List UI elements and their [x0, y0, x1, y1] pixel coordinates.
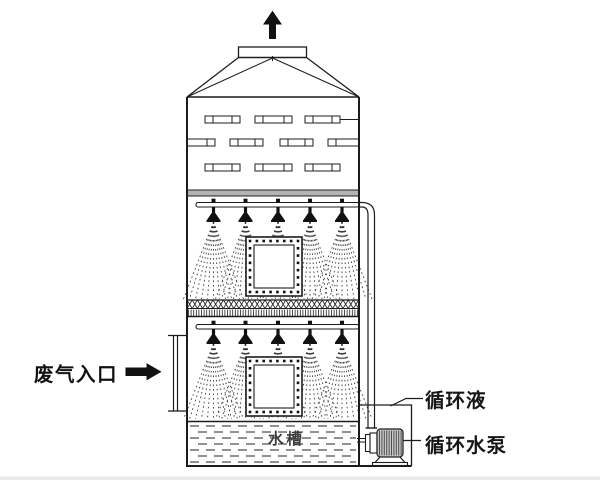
manhole-bolt-dot [276, 411, 279, 414]
manhole-bolt-dot [262, 240, 265, 243]
slat [187, 139, 215, 146]
manhole-bolt-dot [297, 283, 300, 286]
manhole-bolt-dot [269, 291, 272, 294]
nozzle-stem [276, 207, 279, 214]
circulating-liquid-label: 循环液 [425, 389, 487, 412]
spray-ray [214, 344, 226, 419]
spray-header-pipe [196, 325, 359, 330]
nozzle-stem [308, 329, 311, 336]
manhole-bolt-dot [297, 276, 300, 279]
manhole-bolt-dot [297, 269, 300, 272]
nozzle-mount-knob [244, 321, 248, 325]
manhole-bolt-dot [249, 403, 252, 406]
nozzle-stem [244, 329, 247, 336]
spray-nozzle-icon [303, 335, 317, 344]
packing-bed-band [187, 300, 359, 317]
spray-ray [190, 222, 214, 299]
nozzle-stem [276, 329, 279, 336]
spray-ray [216, 344, 246, 419]
spray-ray [342, 344, 348, 419]
manhole-bolt-dot [297, 411, 300, 414]
nozzle-stem [340, 207, 343, 214]
spray-nozzle-icon [271, 213, 285, 222]
spray-ray [342, 344, 366, 419]
spray-nozzle-icon [239, 213, 253, 222]
spray-ray [330, 344, 342, 419]
manhole-bolt-dot [256, 360, 259, 363]
slat [205, 116, 240, 123]
manhole-bolt-dot [283, 291, 286, 294]
slat [255, 164, 292, 171]
spray-ray [310, 344, 340, 419]
manhole-bolt-dot [256, 291, 259, 294]
manhole-bolt-dot [256, 240, 259, 243]
spray-ray [208, 222, 214, 299]
manhole-bolt-dot [249, 367, 252, 370]
manhole-bolt-dot [290, 360, 293, 363]
manhole-bolt-dot [249, 411, 252, 414]
manhole-bolt-dot [283, 240, 286, 243]
slat [328, 139, 359, 146]
spray-ray [304, 344, 310, 419]
pipe-inner-line [359, 207, 368, 428]
manhole-bolt-dot [297, 262, 300, 265]
circulating-pump [357, 429, 408, 466]
nozzle-stem [244, 207, 247, 214]
spray-ray [240, 344, 246, 419]
nozzle-mount-knob [276, 321, 280, 325]
manhole-bolt-dot [297, 403, 300, 406]
slat [255, 116, 292, 123]
nozzle-mount-knob [244, 199, 248, 203]
manhole-bolt-dot [297, 396, 300, 399]
manhole-bolt-dot [249, 276, 252, 279]
pump-legs [375, 457, 405, 463]
spray-ray [310, 222, 322, 299]
waste-gas-inlet-label: 废气入口 [34, 363, 118, 386]
spray-ray [222, 344, 246, 419]
spray-nozzle-icon [271, 335, 285, 344]
slat [205, 164, 240, 171]
spray-ray [214, 222, 226, 299]
manhole-bolt-dot [297, 367, 300, 370]
spray-ray [234, 222, 246, 299]
nozzle-mount-knob [340, 321, 344, 325]
manhole-bolt-dot [276, 360, 279, 363]
manhole-bolt-dot [249, 262, 252, 265]
manhole-bolt-dot [249, 283, 252, 286]
manhole-bolt-dot [262, 411, 265, 414]
manhole-bolt-dot [297, 360, 300, 363]
manhole-bolt-dot [276, 291, 279, 294]
pump-suction-flange [366, 435, 371, 452]
spray-ray [336, 222, 342, 299]
spray-ray [190, 344, 214, 419]
spray-ray [240, 222, 246, 299]
manhole-bolt-dot [249, 374, 252, 377]
water-tank-label: 水槽 [268, 429, 305, 448]
inlet-arrow-icon [126, 364, 161, 380]
spray-ray [342, 222, 366, 299]
manhole-bolt-dot [283, 360, 286, 363]
spray-ray [310, 344, 322, 419]
circulating-pump-label: 循环水泵 [425, 434, 507, 457]
manhole-bolt-dot [262, 291, 265, 294]
manhole-bolt-dot [283, 411, 286, 414]
spray-ray [214, 222, 220, 299]
manhole-bolt-dot [269, 411, 272, 414]
manhole-bolt-dot [269, 360, 272, 363]
exhaust-arrow-icon [264, 12, 281, 39]
spray-nozzle-icon [239, 335, 253, 344]
manhole-bolt-dot [297, 374, 300, 377]
manhole-bolt-dot [249, 382, 252, 385]
spray-ray [310, 222, 340, 299]
spray-nozzle-icon [335, 213, 349, 222]
manhole-bolt-dot [297, 240, 300, 243]
nozzle-mount-knob [308, 321, 312, 325]
nozzle-mount-knob [212, 199, 216, 203]
spray-ray [208, 344, 214, 419]
manhole-bolt-dot [276, 240, 279, 243]
spray-header-pipe [196, 203, 359, 208]
spray-ray [214, 344, 238, 419]
spray-ray [214, 344, 244, 419]
manhole-inner-frame [254, 365, 294, 408]
manhole-bolt-dot [249, 360, 252, 363]
scrubber-tower-diagram: 废气入口 循环液 循环水泵 水槽 [0, 0, 600, 484]
nozzle-stem [212, 329, 215, 336]
bottom-strip [0, 477, 600, 481]
spray-ray [310, 344, 334, 419]
diagram-canvas: 废气入口 循环液 循环水泵 水槽 [0, 0, 600, 484]
manhole-bolt-dot [290, 411, 293, 414]
spray-ray [202, 344, 214, 419]
outlet-collar [239, 47, 307, 58]
spray-ray [342, 344, 354, 419]
manhole-bolt-dot [297, 382, 300, 385]
spray-ray [312, 222, 342, 299]
slat [280, 139, 313, 146]
spray-ray [216, 222, 246, 299]
manhole-bolt-dot [249, 254, 252, 257]
slat [230, 139, 263, 146]
spray-ray [330, 222, 342, 299]
manhole-bolt-dot [269, 240, 272, 243]
spray-ray [202, 222, 214, 299]
manhole-bolt-dot [249, 396, 252, 399]
nozzle-stem [212, 207, 215, 214]
pump-base [373, 463, 408, 466]
nozzle-stem [308, 207, 311, 214]
manhole-bolt-dot [297, 291, 300, 294]
demister-slat-rows [187, 116, 359, 171]
spray-ray [318, 344, 342, 419]
manhole-bolt-dot [297, 389, 300, 392]
manhole-bolt-dot [249, 240, 252, 243]
manhole-inner-frame [254, 245, 294, 288]
manhole-bolt-dot [297, 247, 300, 250]
pipe-outer-line [359, 203, 375, 429]
spray-nozzle-icon [335, 335, 349, 344]
spray-ray [214, 222, 244, 299]
spray-ray [312, 344, 342, 419]
spray-ray [336, 344, 342, 419]
nozzle-mount-knob [340, 199, 344, 203]
slat [305, 116, 340, 123]
manhole-bolt-dot [297, 254, 300, 257]
spray-nozzle-icon [303, 213, 317, 222]
manhole-bolt-dot [249, 291, 252, 294]
inlet-flange [168, 335, 187, 412]
spray-ray [234, 344, 246, 419]
manhole-bolt-dot [249, 247, 252, 250]
nozzle-mount-knob [212, 321, 216, 325]
support-band [187, 190, 359, 196]
spray-ray [304, 222, 310, 299]
hood-outline [187, 58, 359, 98]
nozzle-mount-knob [308, 199, 312, 203]
spray-ray [310, 344, 316, 419]
spray-nozzle-icon [207, 213, 221, 222]
nozzle-mount-knob [276, 199, 280, 203]
inlet-flange-lines [174, 335, 178, 412]
pump-front-casing [370, 433, 377, 453]
spray-ray [310, 222, 316, 299]
nozzle-stem [340, 329, 343, 336]
manhole-bolt-dot [290, 291, 293, 294]
manhole-bolt-dot [262, 360, 265, 363]
manhole-bolt-dot [249, 389, 252, 392]
manhole-bolt-dot [290, 240, 293, 243]
spray-ray [214, 344, 220, 419]
slat [305, 164, 340, 171]
manhole-bolt-dot [256, 411, 259, 414]
spray-ray [342, 222, 348, 299]
support-band-rect [187, 190, 359, 196]
circulating-liquid-pipe [359, 203, 377, 429]
spray-ray [342, 222, 354, 299]
manhole-bolt-dot [249, 269, 252, 272]
spray-nozzle-icon [207, 335, 221, 344]
